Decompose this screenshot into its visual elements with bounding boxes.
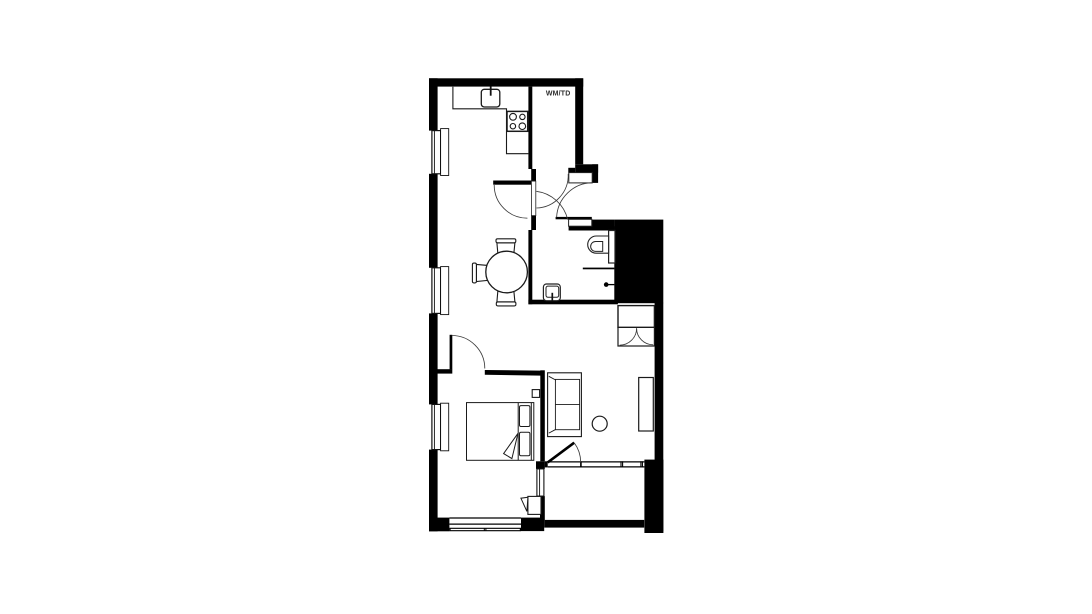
svg-text:WM/TD: WM/TD: [546, 90, 571, 97]
